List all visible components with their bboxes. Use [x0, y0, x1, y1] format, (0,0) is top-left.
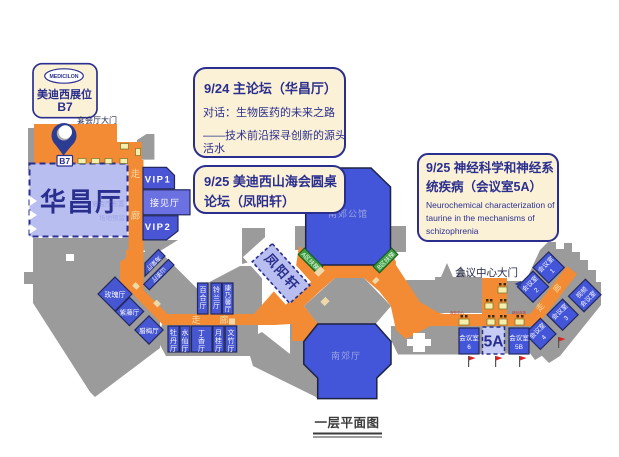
svg-text:VIP1: VIP1: [145, 175, 172, 186]
svg-text:水: 水: [182, 328, 189, 337]
svg-text:兰: 兰: [213, 293, 220, 302]
svg-text:论坛（凤阳轩）: 论坛（凤阳轩）: [204, 194, 295, 209]
svg-text:9/24 主论坛（华昌厅）: 9/24 主论坛（华昌厅）: [204, 81, 337, 96]
svg-text:5B: 5B: [515, 344, 523, 351]
svg-text:统疾病（会议室5A）: 统疾病（会议室5A）: [426, 179, 542, 194]
svg-text:铃: 铃: [213, 285, 220, 294]
svg-text:玫瑰厅: 玫瑰厅: [105, 290, 126, 299]
svg-text:VIP2: VIP2: [145, 222, 172, 233]
svg-text:香: 香: [198, 336, 205, 345]
svg-text:MEDICILON: MEDICILON: [49, 74, 78, 80]
svg-text:乃: 乃: [225, 291, 232, 299]
svg-text:会议中心大门: 会议中心大门: [455, 266, 518, 279]
svg-text:厅: 厅: [225, 305, 232, 313]
svg-text:腊梅厅: 腊梅厅: [139, 326, 159, 335]
svg-text:场地预留: 场地预留: [99, 213, 125, 222]
svg-text:taurine in the mechanisms of: taurine in the mechanisms of: [426, 213, 535, 223]
svg-text:厅: 厅: [170, 345, 177, 353]
svg-text:宴会厅大门: 宴会厅大门: [77, 115, 117, 125]
svg-text:——技术前沿探寻创新的源头: ——技术前沿探寻创新的源头: [203, 128, 346, 142]
svg-text:9/25 美迪西山海会圆桌: 9/25 美迪西山海会圆桌: [204, 174, 338, 189]
svg-text:走: 走: [131, 169, 141, 180]
svg-text:走: 走: [191, 315, 200, 325]
svg-text:馨: 馨: [225, 297, 232, 306]
svg-text:厅: 厅: [215, 345, 222, 353]
svg-text:一层平面图: 一层平面图: [314, 416, 379, 430]
svg-text:宴会厅布置: 宴会厅布置: [92, 199, 125, 208]
svg-text:廊: 廊: [131, 210, 141, 222]
svg-text:9/25 神经科学和神经系: 9/25 神经科学和神经系: [426, 160, 554, 175]
svg-text:美迪西展位: 美迪西展位: [37, 87, 92, 101]
svg-text:文: 文: [228, 328, 235, 337]
svg-text:桂: 桂: [215, 336, 222, 345]
svg-text:5A: 5A: [484, 334, 504, 351]
svg-text:B7: B7: [59, 156, 70, 166]
svg-text:竹: 竹: [228, 336, 235, 345]
svg-text:会议室: 会议室: [509, 333, 529, 342]
svg-text:厅: 厅: [182, 345, 189, 353]
svg-text:商务中心: 商务中心: [450, 310, 464, 315]
svg-text:厅: 厅: [200, 302, 207, 310]
svg-text:Neurochemical characterization: Neurochemical characterization of: [426, 200, 555, 210]
svg-text:百: 百: [200, 286, 207, 294]
svg-text:紫藤厅: 紫藤厅: [120, 308, 140, 317]
svg-text:仙: 仙: [182, 336, 189, 345]
svg-text:schizophrenia: schizophrenia: [426, 226, 479, 236]
svg-text:厅: 厅: [213, 302, 220, 310]
svg-text:精品商场: 精品商场: [512, 310, 526, 315]
svg-text:合: 合: [200, 293, 207, 302]
svg-text:厅: 厅: [198, 345, 205, 353]
svg-text:牡: 牡: [170, 328, 177, 337]
svg-text:廊: 廊: [219, 314, 228, 325]
svg-text:接见厅: 接见厅: [150, 197, 180, 208]
svg-text:丁: 丁: [198, 329, 205, 337]
svg-text:对话：生物医药的未来之路: 对话：生物医药的未来之路: [203, 105, 335, 119]
svg-text:活水: 活水: [203, 142, 225, 155]
svg-text:6: 6: [467, 344, 471, 351]
svg-text:会议室: 会议室: [459, 333, 479, 342]
svg-text:厅: 厅: [228, 345, 235, 353]
svg-text:南郊厅: 南郊厅: [331, 350, 361, 361]
svg-text:丹: 丹: [170, 337, 177, 345]
svg-text:康: 康: [225, 283, 232, 292]
svg-text:B7: B7: [57, 100, 73, 114]
svg-text:月: 月: [215, 329, 222, 337]
